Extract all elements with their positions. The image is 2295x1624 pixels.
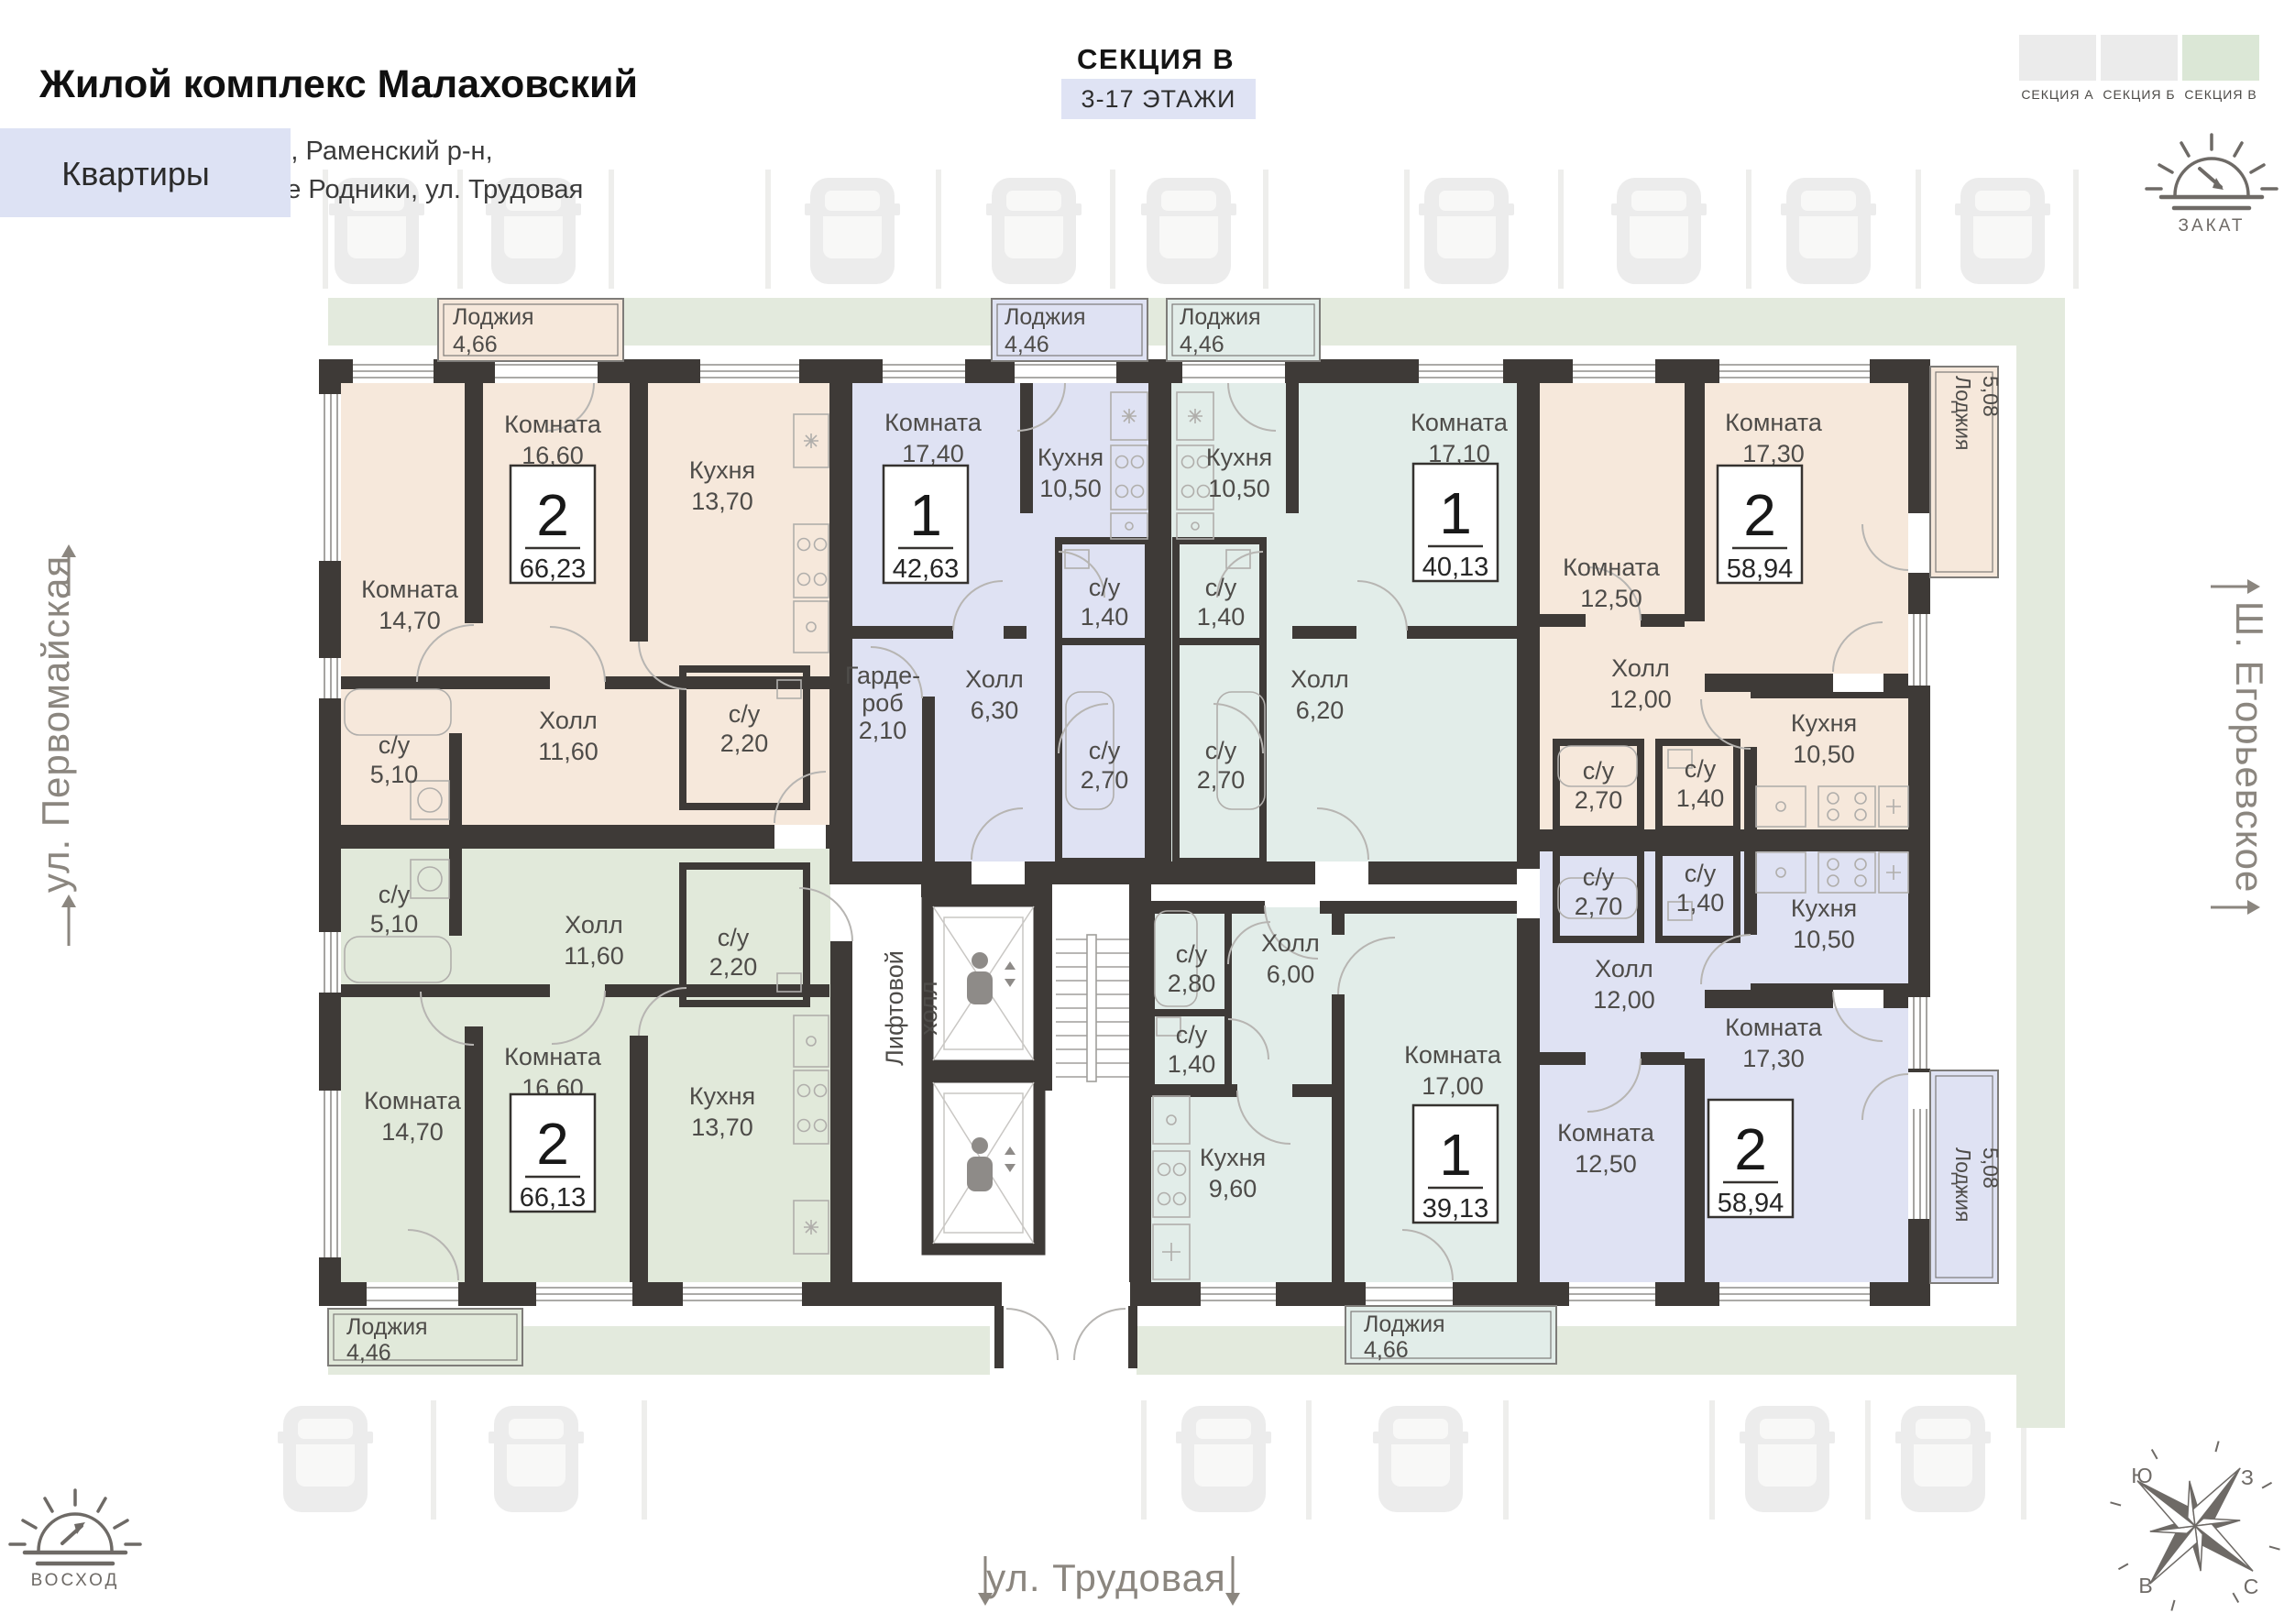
car-icon [1895, 1406, 1991, 1512]
svg-text:58,94: 58,94 [1727, 554, 1794, 584]
svg-text:1: 1 [1439, 480, 1472, 546]
svg-text:40,13: 40,13 [1422, 553, 1489, 582]
svg-text:2: 2 [1734, 1116, 1767, 1182]
apartment-badge-2-58-94-top[interactable]: 2 58,94 [1718, 466, 1802, 584]
loggia-apt-2-66-23: Лоджия4,66 [438, 299, 623, 361]
svg-text:Лоджия: Лоджия [1951, 1147, 1975, 1223]
svg-text:66,13: 66,13 [520, 1183, 587, 1213]
loggia-apt-2-58-94-bottom: Лоджия 5,08 [1930, 1070, 2003, 1283]
svg-text:42,63: 42,63 [893, 554, 960, 584]
compass-east: В [2138, 1574, 2152, 1597]
car-icon [1176, 1406, 1271, 1512]
page-title: Жилой комплекс Малаховский [38, 62, 638, 106]
loggia-apt-1-40-13: Лоджия4,46 [1167, 299, 1320, 361]
street-left: ул. Первомайская [34, 544, 77, 946]
svg-text:Ш. Егорьевское: Ш. Егорьевское [2228, 601, 2271, 894]
svg-text:1: 1 [909, 482, 942, 548]
tab-section-a[interactable]: СЕКЦИЯ А [2019, 35, 2096, 102]
car-icon [805, 178, 900, 284]
car-icon [1373, 1406, 1468, 1512]
svg-text:5,08: 5,08 [1979, 376, 2003, 417]
apartment-badge-1-42-63[interactable]: 1 42,63 [884, 466, 968, 584]
svg-text:5,08: 5,08 [1979, 1147, 2003, 1189]
svg-text:58,94: 58,94 [1718, 1189, 1784, 1218]
svg-text:1: 1 [1439, 1122, 1472, 1188]
svg-text:СЕКЦИЯ В: СЕКЦИЯ В [2184, 87, 2257, 102]
loggia-apt-1-42-63: Лоджия4,46 [992, 299, 1147, 361]
car-icon [1141, 178, 1236, 284]
car-icon [489, 1406, 584, 1512]
svg-text:2: 2 [536, 1111, 569, 1177]
apartment-badge-2-58-94-bottom[interactable]: 2 58,94 [1708, 1100, 1793, 1218]
apartment-badge-2-66-23[interactable]: 2 66,23 [511, 466, 595, 584]
lift-hall-label: холл [915, 981, 942, 1035]
tab-section-b[interactable]: СЕКЦИЯ Б [2101, 35, 2178, 102]
loggia-apt-1-39-13: Лоджия4,66 [1345, 1306, 1556, 1364]
car-icon [278, 1406, 373, 1512]
loggia-apt-2-66-13: Лоджия4,46 [328, 1309, 522, 1366]
svg-text:66,23: 66,23 [520, 554, 587, 584]
svg-text:СЕКЦИЯ Б: СЕКЦИЯ Б [2103, 87, 2175, 102]
apartments-tag-label: Квартиры [61, 155, 209, 192]
sunset-label: ЗАКАТ [2178, 216, 2245, 236]
section-selector: СЕКЦИЯ А СЕКЦИЯ Б СЕКЦИЯ В [2019, 35, 2259, 102]
compass-south: Ю [2131, 1464, 2152, 1487]
svg-text:2: 2 [1743, 482, 1776, 548]
tab-section-v[interactable]: СЕКЦИЯ В [2182, 35, 2259, 102]
apartment-badge-1-40-13[interactable]: 1 40,13 [1413, 464, 1498, 582]
svg-text:ул. Первомайская: ул. Первомайская [34, 555, 77, 893]
car-icon [986, 178, 1082, 284]
compass-north: С [2244, 1575, 2259, 1598]
car-icon [1611, 178, 1707, 284]
apartment-badge-2-66-13[interactable]: 2 66,13 [511, 1094, 595, 1213]
car-icon [1781, 178, 1876, 284]
svg-text:Лоджия: Лоджия [1951, 376, 1975, 451]
svg-text:СЕКЦИЯ А: СЕКЦИЯ А [2021, 87, 2093, 102]
svg-text:ул. Трудовая: ул. Трудовая [986, 1556, 1226, 1599]
floor-plan-canvas: Лоджия4,66 Лоджия4,46 Лоджия4,46 Лоджия … [0, 0, 2295, 1624]
car-icon [1419, 178, 1514, 284]
section-title: СЕКЦИЯ В [1077, 43, 1235, 75]
svg-text:2: 2 [536, 482, 569, 548]
entrance-clearing [990, 1326, 1137, 1375]
sunrise-label: ВОСХОД [31, 1571, 120, 1590]
compass-west: З [2241, 1465, 2254, 1489]
apartment-badge-1-39-13[interactable]: 1 39,13 [1413, 1105, 1498, 1223]
loggia-apt-2-58-94-top: Лоджия 5,08 [1930, 367, 2003, 577]
car-icon [1740, 1406, 1835, 1512]
street-bottom: ул. Трудовая [978, 1556, 1240, 1606]
car-icon [1955, 178, 2050, 284]
floors-label: 3-17 ЭТАЖИ [1082, 85, 1236, 113]
svg-text:39,13: 39,13 [1422, 1194, 1489, 1223]
page: Лоджия4,66 Лоджия4,46 Лоджия4,46 Лоджия … [0, 0, 2295, 1624]
lift-hall-label: Лифтовой [881, 950, 908, 1066]
